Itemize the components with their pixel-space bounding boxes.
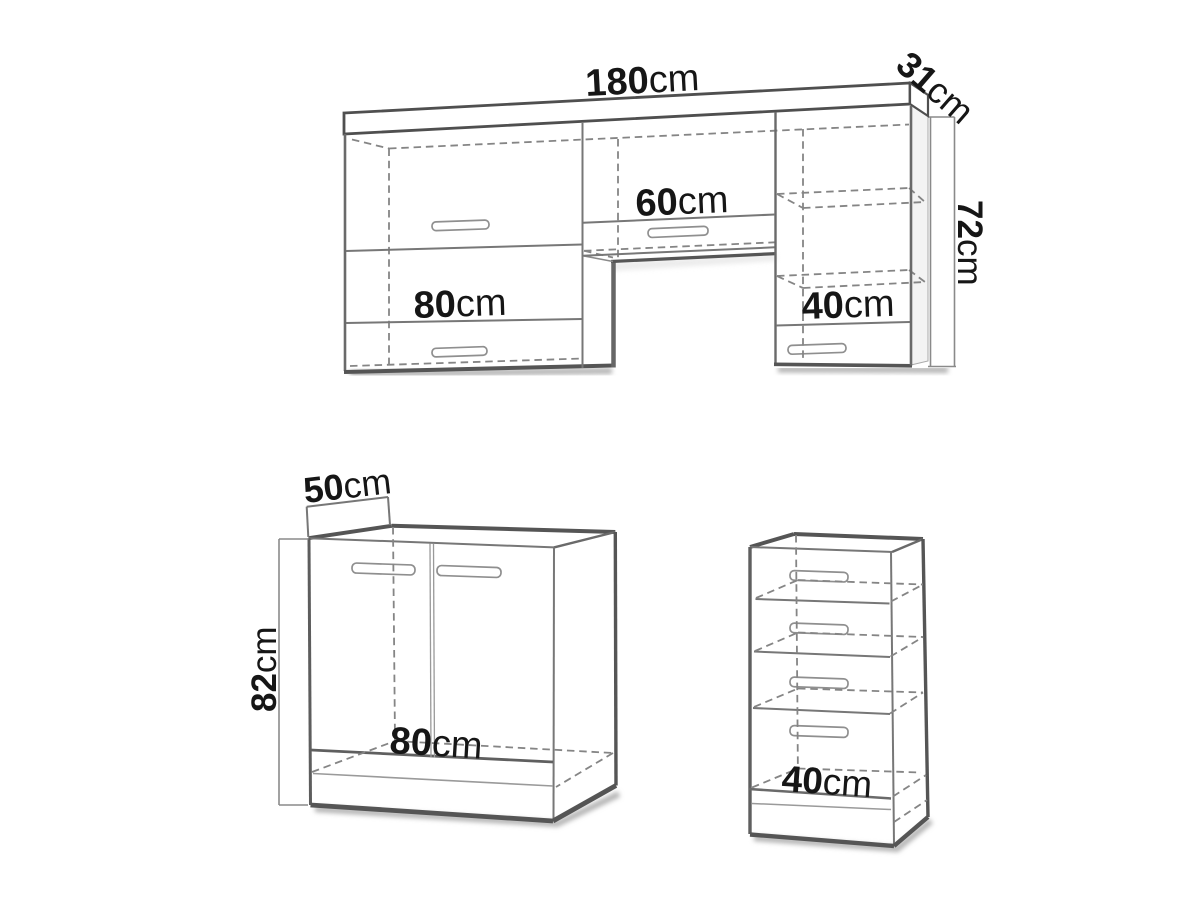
svg-text:180cm: 180cm xyxy=(584,57,700,105)
svg-text:82cm: 82cm xyxy=(245,626,284,712)
svg-text:50cm: 50cm xyxy=(301,460,393,511)
svg-text:80cm: 80cm xyxy=(388,720,483,768)
svg-text:60cm: 60cm xyxy=(635,179,730,225)
svg-text:72cm: 72cm xyxy=(950,200,989,286)
svg-text:80cm: 80cm xyxy=(413,282,507,327)
svg-text:40cm: 40cm xyxy=(801,283,895,328)
svg-text:40cm: 40cm xyxy=(780,758,873,805)
